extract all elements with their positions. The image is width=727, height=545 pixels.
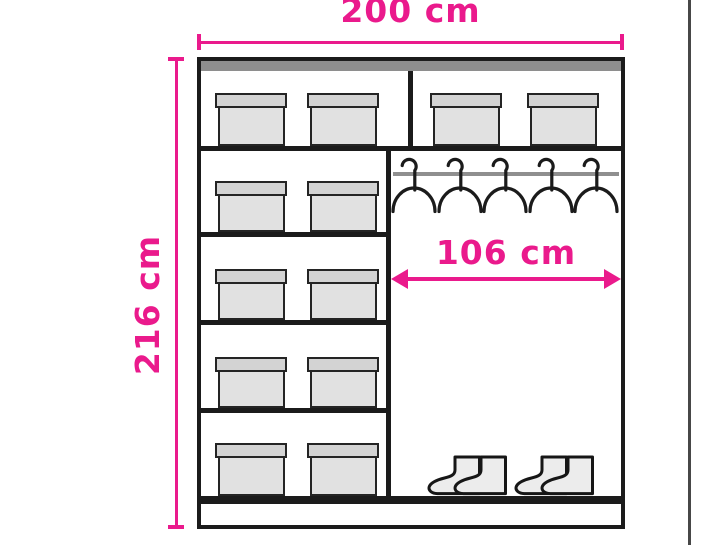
width-dimension-label: 200 cm (197, 0, 624, 29)
height-dimension-shaft (175, 57, 179, 529)
clothes-hanger-icon (437, 150, 483, 214)
height-dimension-line (168, 57, 184, 529)
interior-arrow-head-right (604, 269, 621, 289)
storage-box (307, 269, 379, 320)
clothes-hanger-icon (482, 150, 528, 214)
storage-box (430, 93, 502, 146)
box-body (310, 282, 377, 320)
shelf-2 (201, 232, 391, 237)
page-edge-line (688, 0, 691, 545)
box-body (218, 106, 285, 146)
top-section-divider (408, 71, 413, 149)
box-body (530, 106, 597, 146)
interior-arrow-shaft (402, 277, 610, 281)
bottom-panel (201, 496, 621, 504)
box-body (310, 370, 377, 408)
boots-pair-icon (514, 455, 596, 496)
shelf-4 (201, 408, 391, 413)
box-body (310, 194, 377, 232)
box-body (218, 456, 285, 496)
storage-box (215, 93, 287, 146)
height-dimension-tick-bottom (168, 525, 184, 529)
clothes-hanger-icon (573, 150, 619, 214)
height-dimension-tick-top (168, 57, 184, 61)
storage-box (307, 443, 379, 496)
interior-arrow-head-left (391, 269, 408, 289)
box-body (218, 282, 285, 320)
box-body (310, 106, 377, 146)
shelf-3 (201, 320, 391, 325)
interior-width-dimension-arrow (391, 269, 621, 289)
height-dimension-label: 216 cm (130, 220, 166, 390)
box-body (310, 456, 377, 496)
storage-box (527, 93, 599, 146)
storage-box (215, 443, 287, 496)
box-body (218, 370, 285, 408)
width-dimension-tick-left (197, 34, 201, 50)
storage-box (307, 181, 379, 232)
interior-width-dimension-label: 106 cm (391, 235, 621, 271)
wardrobe-diagram: 200 cm 216 cm (0, 0, 727, 545)
storage-box (307, 357, 379, 408)
wardrobe-interior: 106 cm (201, 61, 621, 525)
boots-pair-icon (427, 455, 509, 496)
top-panel (201, 61, 621, 71)
storage-box (215, 181, 287, 232)
box-body (433, 106, 500, 146)
clothes-hanger-icon (528, 150, 574, 214)
clothes-hanger-icon (391, 150, 437, 214)
storage-box (215, 269, 287, 320)
wardrobe-frame: 106 cm (197, 57, 625, 529)
box-body (218, 194, 285, 232)
width-dimension-line (197, 34, 624, 50)
storage-box (307, 93, 379, 146)
storage-box (215, 357, 287, 408)
width-dimension-tick-right (620, 34, 624, 50)
width-dimension-shaft (197, 41, 624, 45)
